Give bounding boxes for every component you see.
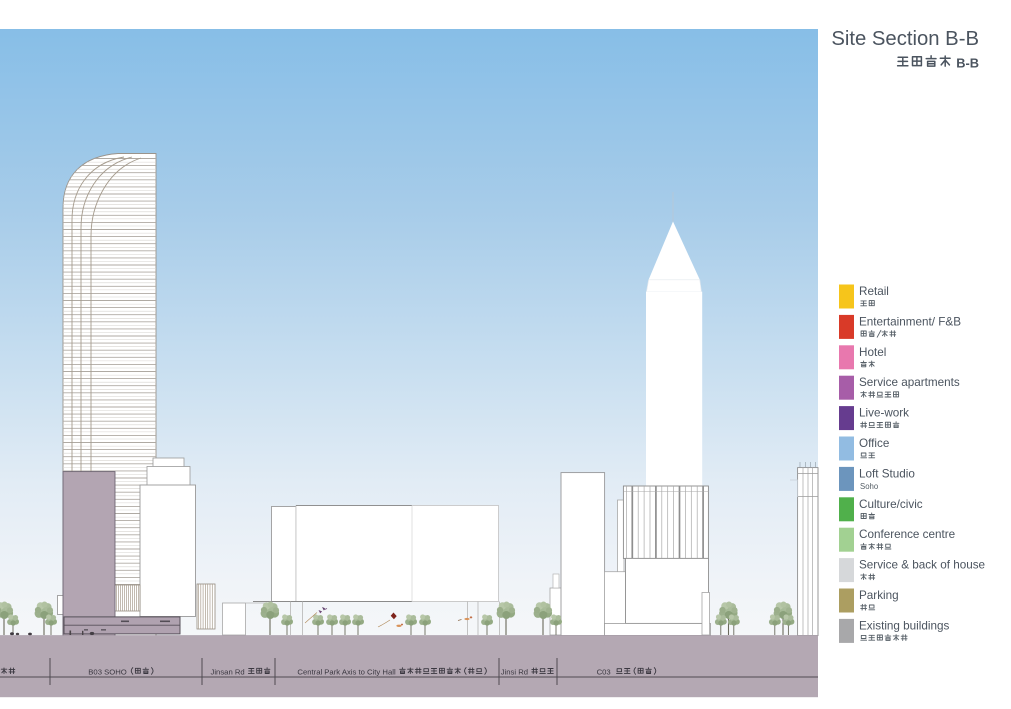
svg-text:Retail: Retail [859,285,889,298]
svg-text:C03: C03 [597,667,611,676]
svg-text:Entertainment/ F&B: Entertainment/ F&B [859,315,961,328]
svg-text:Culture/civic: Culture/civic [859,498,923,511]
svg-text:Jinsi Rd: Jinsi Rd [501,667,528,676]
svg-text:Jinsan Rd: Jinsan Rd [211,667,245,676]
svg-text:Conference centre: Conference centre [859,528,955,541]
svg-text:Soho: Soho [860,482,879,491]
svg-text:Site Section B-B: Site Section B-B [831,28,979,50]
svg-text:Existing buildings: Existing buildings [859,619,949,632]
svg-text:B03 SOHO: B03 SOHO [88,667,126,676]
svg-text:Parking: Parking [859,589,899,602]
svg-text:Service & back of house: Service & back of house [859,559,985,572]
svg-text:Service apartments: Service apartments [859,376,960,389]
svg-text:Hotel: Hotel [859,346,886,359]
svg-text:Loft Studio: Loft Studio [859,467,915,480]
svg-text:Live-work: Live-work [859,407,909,420]
svg-text:Central Park Axis to City Hall: Central Park Axis to City Hall [297,667,396,676]
svg-text:B-B: B-B [956,56,979,71]
svg-text:Office: Office [859,437,889,450]
